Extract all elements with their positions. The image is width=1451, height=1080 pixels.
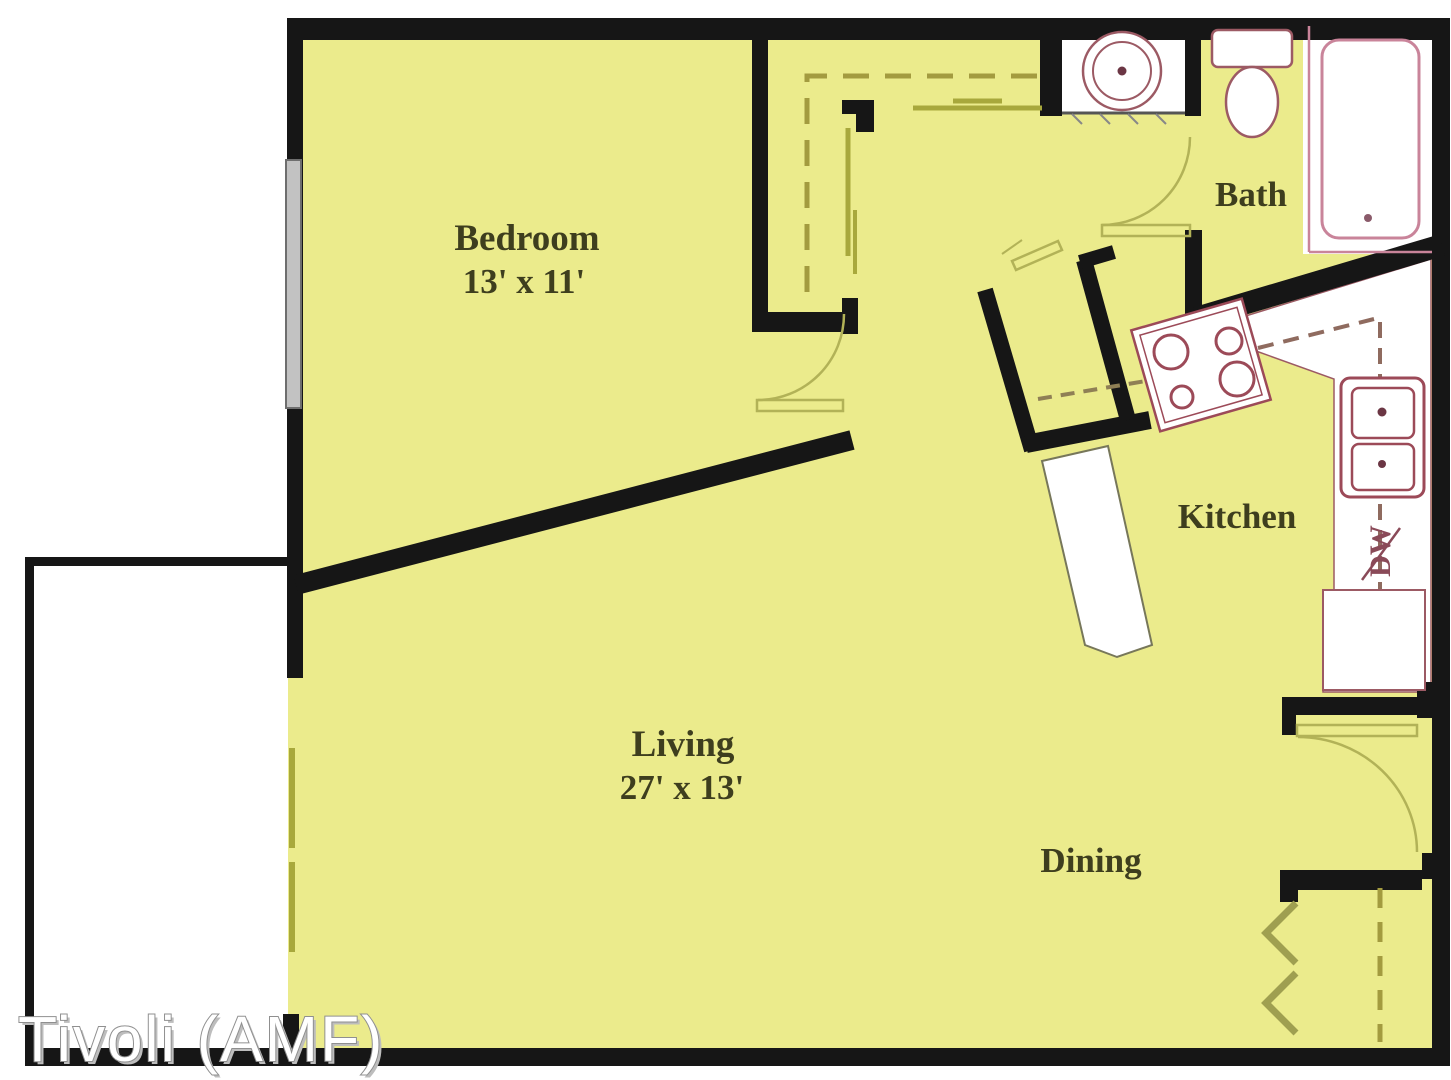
entry-closet-left-jamb: [1280, 870, 1298, 902]
right-exterior-wall: [1432, 18, 1450, 1066]
patio: [25, 557, 288, 1054]
kitchen-label: Kitchen: [1178, 497, 1297, 536]
bedroom-right-wall: [752, 18, 768, 316]
closet-vanity-divider-wall: [1040, 20, 1062, 116]
living-label: Living: [632, 724, 735, 765]
entry-door-bottom-jamb: [1422, 853, 1437, 879]
toilet-tank-icon: [1212, 30, 1292, 67]
vanity-sink-drain: [1118, 67, 1127, 76]
bedroom-label: Bedroom: [454, 218, 599, 259]
kitchen-end-jamb: [1282, 697, 1296, 735]
patio-floor: [25, 557, 287, 1054]
entry-closet-header-wall: [1280, 870, 1422, 890]
bathtub-drain: [1364, 214, 1372, 222]
bedroom-window: [286, 160, 301, 408]
watermark: Tivoli (AMF) Tivoli (AMF): [18, 1003, 387, 1078]
bathtub-icon: [1322, 40, 1419, 238]
bedroom-dimensions: 13' x 11': [463, 262, 586, 301]
kitchen-end-wall: [1287, 697, 1419, 715]
kitchen-entry-right-cap: [1080, 252, 1114, 262]
dining-label: Dining: [1040, 841, 1142, 880]
sink-drain-1: [1378, 408, 1387, 417]
floor-plan: Bedroom 13' x 11' Bath Kitchen Living 27…: [0, 0, 1451, 1080]
floor-plan-page: Bedroom 13' x 11' Bath Kitchen Living 27…: [0, 0, 1451, 1080]
bath-door-hinge-wall: [1185, 230, 1202, 318]
vanity-bath-divider-wall: [1185, 20, 1201, 116]
toilet-bowl-icon: [1226, 67, 1278, 137]
closet-wall-stub-top: [842, 100, 874, 114]
bath-label: Bath: [1215, 175, 1287, 214]
patio-top-wall: [25, 557, 288, 566]
patio-left-wall: [25, 557, 34, 1054]
refrigerator-icon: [1323, 590, 1425, 690]
dishwasher-label: DW: [1364, 525, 1397, 577]
closet-wall-stub-corner: [856, 112, 874, 132]
sink-drain-2: [1378, 460, 1386, 468]
watermark-text: Tivoli (AMF): [18, 1003, 384, 1075]
living-dimensions: 27' x 13': [620, 768, 744, 807]
